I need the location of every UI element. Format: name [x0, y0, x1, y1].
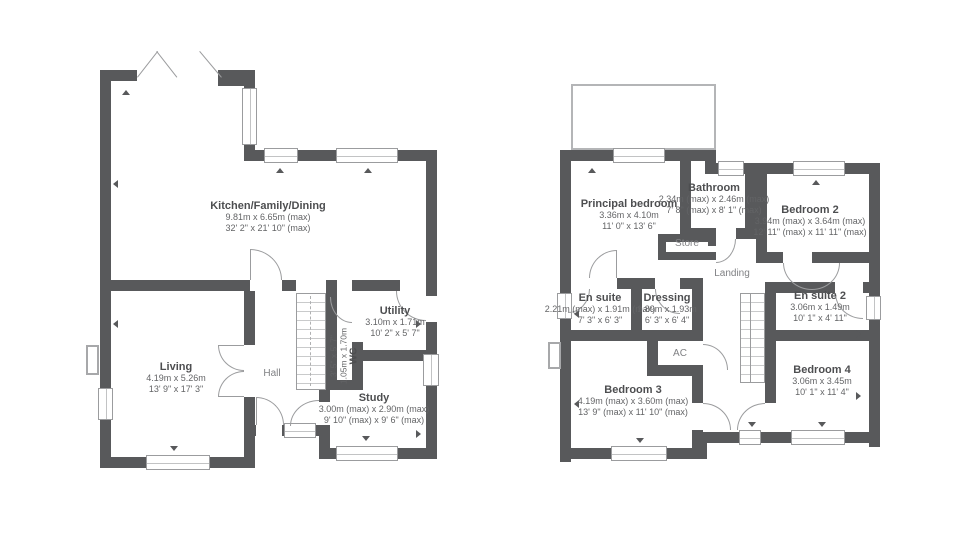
- window: [336, 446, 398, 461]
- room-name: Kitchen/Family/Dining: [210, 200, 326, 212]
- door-arc: [256, 397, 284, 425]
- room-label-landing: Landing: [714, 268, 750, 279]
- room-label-store: Store: [675, 238, 699, 249]
- room-name: WC: [349, 328, 360, 384]
- stair-direction-line: [310, 296, 311, 386]
- wall: [326, 280, 337, 291]
- door-opening: [256, 425, 282, 436]
- wall: [658, 252, 716, 260]
- door-leaf: [256, 397, 257, 425]
- staircase: [740, 293, 765, 383]
- room-name: Bedroom 3: [578, 384, 689, 396]
- wall: [696, 432, 880, 443]
- wall: [560, 330, 703, 341]
- wall: [647, 365, 703, 376]
- room-dim-imperial: 10' 1" x 11' 4": [792, 387, 852, 398]
- window: [791, 430, 845, 445]
- door-leaf: [250, 249, 251, 280]
- room-label-living: Living 4.19m x 5.26m 13' 9" x 17' 3": [146, 361, 206, 395]
- chimney-outline: [548, 342, 561, 369]
- floorplan-canvas: Kitchen/Family/Dining 9.81m x 6.65m (max…: [0, 0, 980, 560]
- window: [242, 88, 257, 145]
- door-arc: [589, 250, 617, 278]
- open-door-line: [199, 51, 222, 78]
- room-name: En suite 2: [790, 290, 850, 302]
- dimension-tick: [856, 392, 861, 400]
- door-arc: [703, 403, 731, 430]
- room-label-utility: Utility 3.10m x 1.71m 10' 2" x 5' 7": [365, 305, 425, 339]
- room-label-wc: 3' 5" x 5' 7" 1.05m x 1.70m WC: [329, 328, 360, 384]
- room-name: Study: [319, 392, 430, 404]
- window: [423, 354, 439, 386]
- wall: [692, 430, 703, 459]
- open-door-line: [156, 51, 177, 78]
- dimension-tick: [364, 168, 372, 173]
- wall: [812, 252, 880, 263]
- room-dim-imperial: 13' 9" (max) x 11' 10" (max): [578, 407, 689, 418]
- room-dim-imperial: 10' 2" x 5' 7": [365, 328, 425, 339]
- dimension-tick: [122, 90, 130, 95]
- wall: [765, 341, 776, 403]
- dimension-tick: [113, 180, 118, 188]
- wall: [736, 228, 745, 239]
- room-label-kitchen: Kitchen/Family/Dining 9.81m x 6.65m (max…: [210, 200, 326, 234]
- door-leaf: [616, 250, 617, 278]
- window: [793, 161, 845, 176]
- room-dim-metric: 3.06m x 1.49m: [790, 302, 850, 313]
- window: [613, 148, 665, 163]
- door-arc: [290, 400, 319, 426]
- door-arc: [218, 345, 244, 371]
- room-dim-metric: 4.19m x 5.26m: [146, 373, 206, 384]
- room-name: Utility: [365, 305, 425, 317]
- room-name: Bathroom: [659, 182, 770, 194]
- door-arc: [812, 263, 840, 290]
- window: [264, 148, 298, 163]
- room-dim-imperial: 6' 3" x 6' 4": [637, 315, 697, 326]
- wall: [100, 70, 137, 81]
- dimension-tick: [636, 438, 644, 443]
- wall: [282, 280, 296, 291]
- door-leaf: [218, 396, 244, 397]
- room-dim-metric: 1.05m x 1.70m: [339, 328, 349, 384]
- room-dim-metric: 9.81m x 6.65m (max): [210, 212, 326, 223]
- chimney-outline: [86, 345, 99, 375]
- wall: [560, 278, 568, 289]
- wall: [765, 330, 880, 341]
- room-dim-metric: 4.19m (max) x 3.60m (max): [578, 396, 689, 407]
- room-dim-imperial: 10' 1" x 4' 11": [790, 313, 850, 324]
- wall: [708, 234, 716, 246]
- room-name: Dressing: [637, 292, 697, 304]
- room-dim-metric: 1.89m x 1.93m: [637, 304, 697, 315]
- door-opening: [426, 296, 437, 322]
- dimension-tick: [416, 430, 421, 438]
- room-dim-metric: 3.00m (max) x 2.90m (max): [319, 404, 430, 415]
- room-dim-metric: 3.94m (max) x 3.64m (max): [753, 216, 866, 227]
- room-dim-metric: 3.10m x 1.71m: [365, 317, 425, 328]
- dimension-tick: [276, 168, 284, 173]
- dimension-tick: [856, 330, 861, 338]
- door-arc: [716, 239, 736, 263]
- room-dim-imperial: 12' 11" (max) x 11' 11" (max): [753, 227, 866, 238]
- room-dim-imperial: 32' 2" x 21' 10" (max): [210, 223, 326, 234]
- door-arc: [218, 371, 244, 397]
- window: [611, 446, 667, 461]
- window: [718, 161, 744, 176]
- room-label-hall: Hall: [263, 368, 280, 379]
- room-name: Bedroom 4: [792, 364, 852, 376]
- door-arc: [703, 344, 728, 370]
- room-dim-imperial: 9' 10" (max) x 9' 6" (max): [319, 415, 430, 426]
- room-label-dressing: Dressing 1.89m x 1.93m 6' 3" x 6' 4": [637, 292, 697, 326]
- wall: [244, 291, 255, 345]
- window: [146, 455, 210, 470]
- window: [866, 296, 881, 320]
- wall: [863, 282, 880, 293]
- roof-outline: [571, 84, 716, 150]
- staircase: [296, 293, 326, 390]
- room-label-ac: AC: [673, 348, 687, 359]
- room-label-bedroom-2: Bedroom 2 3.94m (max) x 3.64m (max) 12' …: [753, 204, 866, 238]
- window: [336, 148, 398, 163]
- dimension-tick: [818, 422, 826, 427]
- open-door-line: [137, 51, 158, 78]
- stair-rail: [750, 293, 751, 383]
- door-arc: [250, 249, 282, 280]
- room-dim-imperial: 13' 9" x 17' 3": [146, 384, 206, 395]
- room-dim-metric: 3.06m x 3.45m: [792, 376, 852, 387]
- window: [98, 388, 113, 420]
- dimension-tick: [812, 180, 820, 185]
- room-name: Bedroom 2: [753, 204, 866, 216]
- room-label-bedroom-4: Bedroom 4 3.06m x 3.45m 10' 1" x 11' 4": [792, 364, 852, 398]
- window: [739, 430, 761, 445]
- room-name: Living: [146, 361, 206, 373]
- room-label-bedroom-3: Bedroom 3 4.19m (max) x 3.60m (max) 13' …: [578, 384, 689, 418]
- wall: [352, 280, 400, 291]
- wall: [692, 376, 703, 403]
- dimension-tick: [362, 436, 370, 441]
- door-leaf: [218, 345, 244, 346]
- dimension-tick: [113, 320, 118, 328]
- wall: [111, 280, 250, 291]
- dimension-tick: [170, 446, 178, 451]
- room-label-study: Study 3.00m (max) x 2.90m (max) 9' 10" (…: [319, 392, 430, 426]
- room-dim-imperial: 11' 0" x 13' 6": [581, 221, 678, 232]
- wall: [244, 397, 255, 425]
- room-dim-imperial: 3' 5" x 5' 7": [329, 328, 339, 384]
- dimension-tick: [588, 168, 596, 173]
- dimension-tick: [748, 422, 756, 427]
- room-label-en-suite-2: En suite 2 3.06m x 1.49m 10' 1" x 4' 11": [790, 290, 850, 324]
